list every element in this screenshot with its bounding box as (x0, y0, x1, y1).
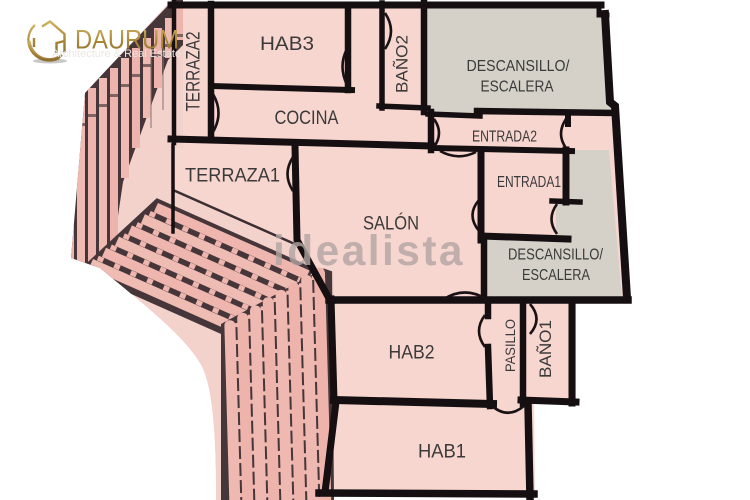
svg-text:BAÑO1: BAÑO1 (535, 320, 555, 378)
svg-text:SALÓN: SALÓN (363, 213, 419, 235)
svg-text:ESCALERA: ESCALERA (481, 79, 555, 96)
svg-text:COCINA: COCINA (275, 108, 339, 129)
svg-text:TERRAZA2: TERRAZA2 (184, 32, 205, 112)
svg-text:ENTRADA2: ENTRADA2 (472, 129, 537, 146)
svg-text:DESCANSILLO/: DESCANSILLO/ (508, 247, 604, 264)
svg-text:BAÑO2: BAÑO2 (392, 35, 412, 93)
svg-text:TERRAZA1: TERRAZA1 (185, 166, 280, 187)
svg-text:DESCANSILLO/: DESCANSILLO/ (467, 58, 571, 75)
svg-text:ESCALERA: ESCALERA (522, 267, 591, 284)
svg-text:HAB1: HAB1 (418, 442, 466, 463)
svg-text:ENTRADA1: ENTRADA1 (497, 174, 561, 191)
svg-text:PASILLO: PASILLO (502, 319, 518, 372)
svg-text:HAB2: HAB2 (389, 343, 435, 364)
svg-text:Architecture & Real Estate: Architecture & Real Estate (52, 48, 181, 60)
svg-text:HAB3: HAB3 (260, 34, 314, 55)
